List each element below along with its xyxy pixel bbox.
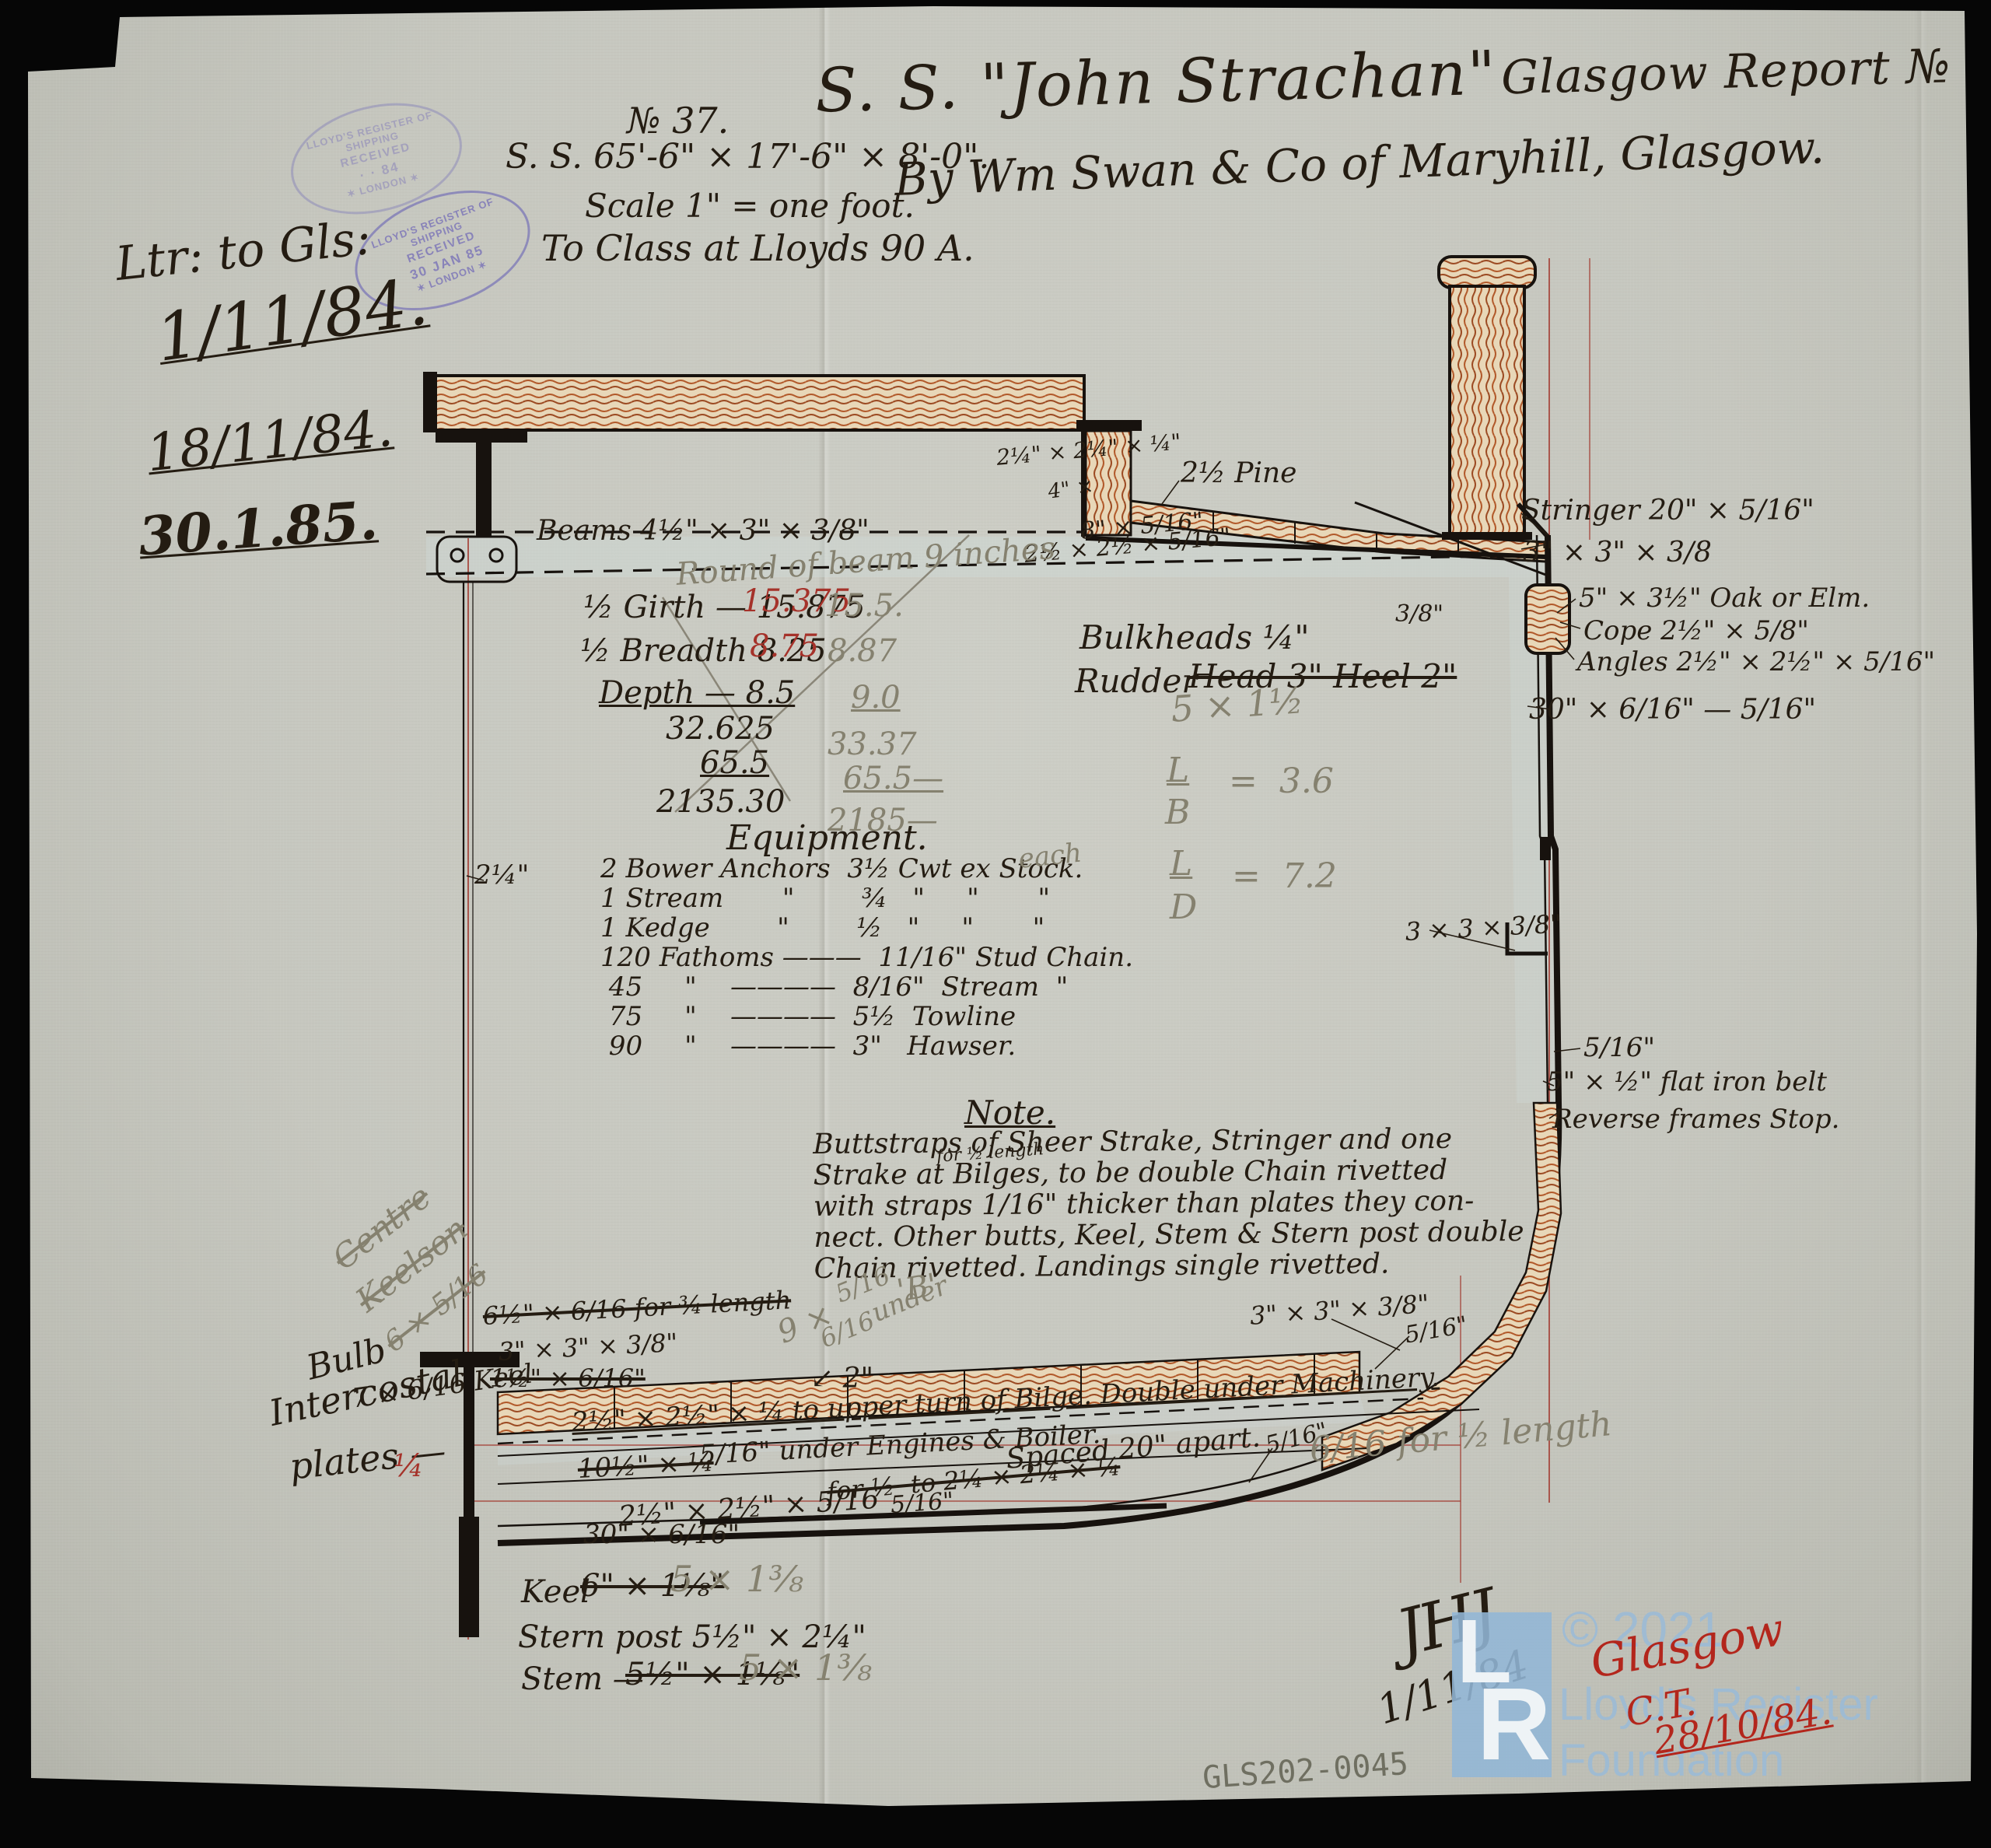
side-cleat (1540, 837, 1551, 860)
equipment-row: 75 " ———— 5½ Towline (600, 1002, 1133, 1031)
stanchion-stem (476, 443, 492, 537)
post-base (1442, 532, 1532, 540)
drawing-label: 5 × 1⅜ (670, 1560, 803, 1598)
deck-planking (426, 376, 1084, 430)
drawing-label: = 7.2 (1232, 859, 1337, 894)
drawing-label: 5/16" (890, 1489, 954, 1517)
equipment-row: 45 " ———— 8/16" Stream " (600, 972, 1133, 1002)
drawing-label: 9.0 (851, 681, 901, 714)
drawing-label: 8.75 (750, 630, 819, 663)
note-paragraph: Buttstraps of Sheer Strake, Stringer and… (813, 1123, 1524, 1285)
drawing-label: 5" × ½" flat iron belt (1546, 1069, 1827, 1097)
drawing-label: 2185— (828, 804, 938, 837)
scanned-sheet: S. S. "John Strachan" Glasgow Report № 6… (0, 0, 1991, 1848)
drawing-label: 10½" × ¼ (577, 1449, 715, 1484)
post-cap (1439, 257, 1535, 288)
oak-rubbing-strake (1526, 585, 1569, 653)
lr-logo-letter-r: R (1477, 1673, 1551, 1776)
report-number: Glasgow Report № 6893 — (1500, 34, 1991, 106)
paper-sheet: S. S. "John Strachan" Glasgow Report № 6… (0, 0, 1991, 1848)
stanchion-flange (436, 430, 527, 443)
drawing-label: 8.87 (828, 635, 897, 667)
drawing-label: 3" × 3" × 3/8 (1523, 538, 1712, 568)
drawing-label: 15.5. (824, 590, 904, 622)
note-line: nect. Other butts, Keel, Stem & Stern po… (814, 1216, 1524, 1254)
drawing-label: 65.5 (700, 747, 769, 779)
class-line: To Class at Lloyds 90 A. (541, 227, 975, 269)
drawing-label: 3/8" (1395, 602, 1443, 627)
drawing-label: 30" × 6/16" (583, 1521, 740, 1549)
drawing-label: 5/16" (1583, 1034, 1655, 1062)
equipment-row: 120 Fathoms ——— 11/16" Stud Chain. (600, 943, 1133, 972)
drawing-label: Depth — 8.5 (599, 677, 795, 709)
deck-end-cap (423, 372, 437, 432)
drawing-label: 2½ Pine (1181, 459, 1296, 488)
lr-logo: L R (1452, 1612, 1552, 1777)
drawing-label: 5" × 3½" Oak or Elm. (1579, 585, 1870, 613)
drawing-label: 32.625 (666, 712, 775, 745)
drawing-label: = 3.6 (1229, 764, 1334, 800)
plan-number: № 37. (627, 100, 729, 142)
drawing-label: 2135.30 (656, 786, 785, 818)
drawing-label: ¼ (394, 1450, 424, 1482)
equipment-row: 90 " ———— 3" Hawser. (600, 1031, 1133, 1061)
drawing-label: Beams 4½" × 3" × 3/8" (537, 516, 870, 546)
drawing-label: ↙ 2" (810, 1364, 873, 1394)
equipment-row: 1 Kedge " ½ " " " (600, 913, 1133, 943)
drawing-label: L (1167, 753, 1189, 789)
drawing-label: 1½" × 6/16" (490, 1366, 646, 1392)
bulwark-cap (1076, 420, 1142, 431)
drawing-label: 2¼" (474, 862, 529, 890)
drawing-label: 5 × 1⅜ (739, 1649, 872, 1686)
drawing-label: Angles 2½" × 2½" × 5/16" (1577, 649, 1935, 677)
post-body (1450, 286, 1524, 535)
drawing-label: 65.5— (843, 762, 943, 795)
equipment-list: 2 Bower Anchors 3½ Cwt ex Stock. 1 Strea… (600, 854, 1133, 1061)
drawing-label: each (1017, 839, 1083, 873)
scale-note: Scale 1" = one foot. (585, 187, 915, 225)
equipment-row: 1 Stream " ¾ " " " (600, 884, 1133, 913)
drawing-label: Stringer 20" × 5/16" (1521, 496, 1814, 526)
keel-bar (459, 1517, 479, 1637)
drawing-label: 30" × 6/16" — 5/16" (1529, 695, 1816, 725)
drawing-label: L (1170, 846, 1192, 882)
drawing-label: D (1170, 890, 1197, 926)
drawing-label: Reverse frames Stop. (1552, 1106, 1839, 1134)
principal-dimensions: S. S. 65'-6" × 17'-6" × 8'-0". (506, 137, 989, 177)
drawing-label: 5 × 1½ (1170, 681, 1305, 728)
drawing-label: Cope 2½" × 5/8" (1583, 618, 1809, 646)
drawing-label: 33.37 (828, 728, 917, 761)
drawing-label: B (1165, 795, 1190, 831)
drawing-label: Bulkheads ¼" (1079, 621, 1310, 655)
